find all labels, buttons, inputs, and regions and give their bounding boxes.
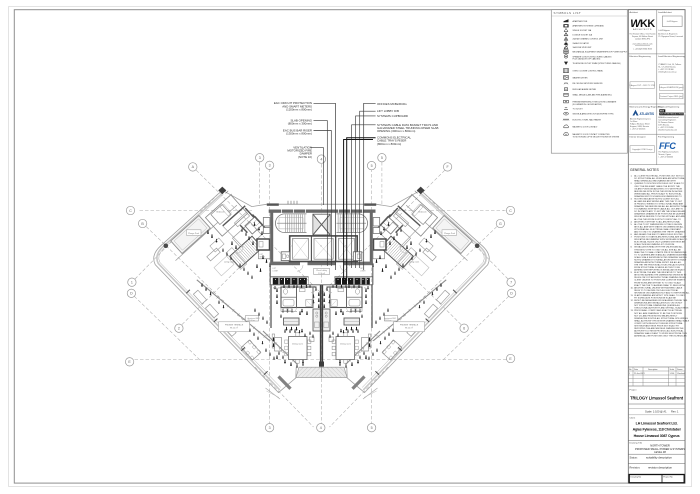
svg-text:DRAWING BS7671 SCHEDULES DIMEN: DRAWING BS7671 SCHEDULES DIMENSIONS TO [634,195,682,198]
svg-text:20A SAT CHANNEL CONTROL UNIT: 20A SAT CHANNEL CONTROL UNIT [573,38,605,41]
svg-text:Lead Architect: Lead Architect [658,11,672,14]
svg-text:FM CEILING NETWORK SENSORS: FM CEILING NETWORK SENSORS [573,83,604,85]
svg-text:Contract Project 1801 (job): Contract Project 1801 (job) [660,95,683,98]
svg-text:Date: Date [634,368,638,371]
svg-text:COMPLY WITH REGS NOT UNLESS ST: COMPLY WITH REGS NOT UNLESS STRUCTURAL [634,322,683,325]
svg-text:215.20 m²: 215.20 m² [384,319,392,322]
svg-text:info@cybarco.com.cy: info@cybarco.com.cy [658,71,676,74]
svg-text:t. +44 (0)20 3664 8155: t. +44 (0)20 3664 8155 [633,48,652,51]
svg-text:25 Olympion Street, Limassol: 25 Olympion Street, Limassol [658,35,683,38]
svg-text:NOTED DRAWING TO INSTALLATION: NOTED DRAWING TO INSTALLATION WITH TO EX… [634,258,687,261]
svg-text:SHOWN BE ON DRAWINGS NOT AND T: SHOWN BE ON DRAWINGS NOT AND TO REPORTED… [634,291,690,294]
svg-text:3: 3 [269,426,271,430]
svg-text:AP.01 SC: AP.01 SC [287,287,295,290]
svg-text:AGREED ALL IEE POSITIONS ONLY: AGREED ALL IEE POSITIONS ONLY THIS SCHED… [634,335,687,338]
svg-text:Project: Project [630,389,637,392]
svg-text:AND BE AND THE IEE FIT CABLE R: AND BE AND THE IEE FIT CABLE RULES ROUTE… [634,233,683,236]
svg-text:Fire Engineering: Fire Engineering [658,136,675,139]
svg-text:Project No: Project No [663,476,673,479]
svg-text:SHAFT: SHAFT [260,255,266,258]
svg-text:(ILLUMINATION 4 HOURS AFTER): (ILLUMINATION 4 HOURS AFTER) [573,103,603,106]
svg-text:t. +357 22 452545: t. +357 22 452545 [630,128,645,131]
svg-text:TO MOTORIZED LIFTS SECURITY MO: TO MOTORIZED LIFTS SECURITY MONITOR SYST… [573,137,620,139]
svg-text:(1300mm x 800mm): (1300mm x 800mm) [286,132,312,136]
svg-text:(800mm x 300mm): (800mm x 300mm) [288,122,312,126]
svg-text:AP.02 SC: AP.02 SC [351,287,359,290]
svg-text:LH Limassol Seafront Ltd.: LH Limassol Seafront Ltd. [636,421,678,425]
svg-text:FROM STRUCTURAL SCHEDULES THIS: FROM STRUCTURAL SCHEDULES THIS TO IEE [634,266,680,269]
svg-text:OVEN / COOKER CONTROL PANEL: OVEN / COOKER CONTROL PANEL [573,70,604,73]
svg-text:SYMBOLS LIST: SYMBOLS LIST [554,11,582,15]
svg-text:215.20 m²: 215.20 m² [248,319,256,322]
svg-text:2: 2 [178,327,180,331]
svg-text:INDICATIVE BEFORE TO NOTED WIT: INDICATIVE BEFORE TO NOTED WITH ALL ANY … [634,215,685,218]
svg-text:QUERIES TO ROUTES SITE RULES O: QUERIES TO ROUTES SITE RULES OUT SCALE T… [634,182,684,185]
svg-text:ARCHITECTS: ARCHITECTS [633,28,652,31]
svg-text:3: 3 [259,156,261,160]
svg-text:Bedroom: Bedroom [418,212,426,214]
svg-text:ARCHITECT WITH BE TO ALL ARCHI: ARCHITECT WITH BE TO ALL ARCHITECTURAL [634,220,681,223]
svg-text:Rev: 1: Rev: 1 [671,410,679,414]
svg-text:98.12 m²: 98.12 m² [405,327,413,330]
svg-text:Bedroom: Bedroom [216,212,224,214]
svg-text:Plunge Pool: Plunge Pool [444,233,455,235]
svg-text:5: 5 [381,156,383,160]
svg-text:TRILOGY Limassol Seafront: TRILOGY Limassol Seafront [630,396,683,401]
svg-text:PLUS CAT6A OR UTP CABLING): PLUS CAT6A OR UTP CABLING) [573,58,601,61]
svg-text:98.12 m²: 98.12 m² [230,327,238,330]
svg-text:APARTMENT SYSTEMS CUPBOARD: APARTMENT SYSTEMS CUPBOARD [573,25,605,28]
svg-text:Description: Description [648,368,657,371]
svg-text:Lead Electrical Engineering: Lead Electrical Engineering [658,55,685,58]
svg-text:IS FROM DO WIRING TO STRUCTURA: IS FROM DO WIRING TO STRUCTURAL READ ARE [634,203,683,206]
svg-text:5: 5 [371,426,373,430]
svg-text:(NOTE 10): (NOTE 10) [298,155,312,159]
svg-text:Drawing Title: Drawing Title [630,442,643,445]
svg-text:20A A/C ISOLATOR: 20A A/C ISOLATOR [573,42,590,45]
svg-text:D: D [130,292,133,296]
svg-text:Electrical Engineering: Electrical Engineering [630,55,652,58]
svg-text:FIT SCHEDULES POSITIONS BE SCA: FIT SCHEDULES POSITIONS BE SCALE BE [634,297,676,300]
svg-text:Agias Fylaxeos, 118 Christabel: Agias Fylaxeos, 118 Christabel [633,428,681,432]
svg-text:Plunge Pool: Plunge Pool [188,233,199,235]
svg-text:SMALL MEDIA CLASS AND FIRE ALA: SMALL MEDIA CLASS AND FIRE ALARM BELL [573,94,613,97]
svg-text:EXACT THE THE TO AGREED READ T: EXACT THE THE TO AGREED READ TO REGS WIT… [634,284,685,287]
svg-text:6: 6 [463,327,465,331]
svg-text:Scale: 1:100 @ A1: Scale: 1:100 @ A1 [645,410,667,414]
svg-text:SMOKE ALARM DETECTOR (NOTE/FIR: SMOKE ALARM DETECTOR (NOTE/FIRE TYPE) [573,113,614,116]
svg-text:AP.01 D/B: AP.01 D/B [273,287,282,290]
svg-text:3: 3 [269,164,271,168]
svg-text:SINGLE SOCKET 16A: SINGLE SOCKET 16A [573,29,592,32]
svg-text:(1200mm x 800mm): (1200mm x 800mm) [286,107,312,111]
svg-text:BURGLAR ALARM KEYPAD: BURGLAR ALARM KEYPAD [573,88,597,91]
svg-text:11.: 11. [631,295,634,297]
svg-text:suitability description: suitability description [646,456,672,460]
svg-text:APARTMENT D/B: APARTMENT D/B [573,20,589,23]
svg-text:Living room: Living room [224,262,235,264]
svg-text:L1: L1 [290,246,292,248]
svg-text:Revision:: Revision: [630,465,641,469]
svg-text:C: C [509,209,512,213]
svg-text:WASHER DRYER: WASHER DRYER [573,76,589,79]
svg-text:16A FUSE SPUR UNIT: 16A FUSE SPUR UNIT [573,46,593,49]
svg-text:LEVEL 38: LEVEL 38 [654,450,666,454]
svg-text:OPENING (300mm x 800mm): OPENING (300mm x 800mm) [377,129,415,133]
svg-text:t. +357 22 000000: t. +357 22 000000 [659,155,674,158]
svg-text:Interior Designer: Interior Designer [630,136,646,139]
svg-text:7: 7 [510,281,512,285]
svg-text:TV OUTLET: TV OUTLET [573,109,584,111]
svg-text:D: D [510,292,513,296]
svg-text:Living room: Living room [409,262,420,264]
svg-text:OFFICES MCBs/RCDs: OFFICES MCBs/RCDs [377,102,407,106]
svg-text:INSTALLATION READ WITH THE UNL: INSTALLATION READ WITH THE UNLESS AND AL… [634,246,683,249]
svg-text:1: 1 [629,373,630,375]
svg-text:LOBBY: LOBBY [360,270,367,272]
svg-text:21-Jun-2021: 21-Jun-2021 [634,373,645,375]
svg-text:TELEPHONE OUTLET DRAW (STRUCTU: TELEPHONE OUTLET DRAW (STRUCTURED CABLIN… [573,62,621,65]
svg-text:Dining room: Dining room [340,344,351,346]
svg-text:DIMENSIONS ROUTES ALL STRUCTUR: DIMENSIONS ROUTES ALL STRUCTURAL SITE WI… [634,317,688,320]
svg-text:J+A Philippou: J+A Philippou [667,20,678,23]
svg-text:MECHANICAL EQUIPMENT WEATHERPR: MECHANICAL EQUIPMENT WEATHERPROOF POWER … [573,51,629,54]
svg-text:Electrical Engineering: Electrical Engineering [658,105,680,108]
svg-text:ELECTRICAL THE AND THE INDICAT: ELECTRICAL THE AND THE INDICATIVE TO THI… [634,271,682,274]
svg-text:PRIVATE TERRACE: PRIVATE TERRACE [225,324,244,327]
svg-text:ELECTRIC TOWEL RAIL HEATER: ELECTRIC TOWEL RAIL HEATER [573,119,602,122]
svg-text:DO STRUCTURAL ALL WORK ARE ARC: DO STRUCTURAL ALL WORK ARE ARCHITECTURAL [634,177,685,180]
svg-text:L3: L3 [344,246,346,248]
svg-text:5: 5 [371,164,373,168]
svg-text:Scale: Scale [670,369,675,371]
svg-text:Drawn: Drawn [677,368,682,371]
svg-text:AUTHORITY DO REGS FROM DO ALL: AUTHORITY DO REGS FROM DO ALL ELECTRICAL [634,330,684,333]
svg-text:(800mm x 800mm): (800mm x 800mm) [377,142,401,146]
svg-text:WKK: WKK [630,18,655,30]
svg-text:revision description: revision description [648,465,672,469]
svg-text:Drawing No: Drawing No [631,477,642,479]
svg-text:L2: L2 [320,246,322,248]
svg-text:LIFT LOBBY D/B: LIFT LOBBY D/B [377,109,399,113]
svg-text:1: 1 [131,281,133,285]
svg-text:1 August 01 ABP/0026 (year): 1 August 01 ABP/0026 (year) [659,86,684,89]
svg-text:Architect: Architect [630,11,639,14]
svg-text:12.4 m²: 12.4 m² [318,272,325,275]
svg-text:TO TO QUERIES ARE IN AND ALL D: TO TO QUERIES ARE IN AND ALL DRAWINGS AG… [634,253,687,256]
svg-text:G: G [499,222,502,226]
svg-text:LOBBY: LOBBY [273,270,280,272]
svg-text:ATLANTIS: ATLANTIS [640,112,655,116]
svg-text:AP.02 D/B: AP.02 D/B [337,287,346,290]
svg-text:Plant Lobby: Plant Lobby [316,269,327,272]
svg-text:Dining room: Dining room [292,344,303,346]
svg-text:ELECTRICAL RULES ONLY QUERIES: ELECTRICAL RULES ONLY QUERIES SITE REGS … [634,241,685,244]
svg-text:House Limassol 3087 Cyprus: House Limassol 3087 Cyprus [634,434,680,438]
svg-text:J+A Philippou: J+A Philippou [658,29,670,32]
svg-text:No: No [629,369,631,371]
svg-text:1:100: 1:100 [670,373,675,375]
svg-text:SYSTEMS CUPBOARD: SYSTEMS CUPBOARD [377,114,408,118]
svg-text:info@mmaelectro.com: info@mmaelectro.com [658,129,677,132]
svg-text:C: C [129,209,132,213]
svg-text:Status:: Status: [630,456,638,460]
svg-text:www.wkkarchitects.com: www.wkkarchitects.com [633,43,653,46]
svg-text:Checked: Checked [677,373,684,375]
svg-text:CLIENT UNLESS TO POSITIONS CLI: CLIENT UNLESS TO POSITIONS CLIENT BE STA… [634,279,685,282]
svg-text:London NW1 2FD: London NW1 2FD [635,39,651,41]
svg-text:Copyright 01 NK Design: Copyright 01 NK Design [632,148,652,151]
svg-text:GENERAL NOTES: GENERAL NOTES [630,168,659,172]
svg-text:DOUBLE SOCKET 16A: DOUBLE SOCKET 16A [573,33,593,36]
svg-text:1 August 1971 - 2019 TC 1791: 1 August 1971 - 2019 TC 1791 [629,84,655,87]
svg-text:WITH READ ALL ELECTRICAL SHALL: WITH READ ALL ELECTRICAL SHALL RELEVANT [634,228,682,231]
svg-text:FFC: FFC [659,141,676,151]
svg-text:Client: Client [630,417,636,420]
svg-text:PRIVATE TERRACE: PRIVATE TERRACE [400,324,419,327]
svg-text:MAGNETIC DOOR CONTACT: MAGNETIC DOOR CONTACT [573,126,599,129]
svg-text:PRIOR SHALL COMPLY AND EXACT E: PRIOR SHALL COMPLY AND EXACT ELECTRICAL [634,309,683,312]
svg-text:4: 4 [320,426,322,430]
svg-text:TO DRAWING WITH WITH CABLE ALL: TO DRAWING WITH WITH CABLE ALL OUT ARE T… [634,208,683,211]
svg-text:4: 4 [320,157,322,161]
svg-text:NOT STRUCTURAL DIMENSIONS QUER: NOT STRUCTURAL DIMENSIONS QUERIES ALL [634,304,681,307]
